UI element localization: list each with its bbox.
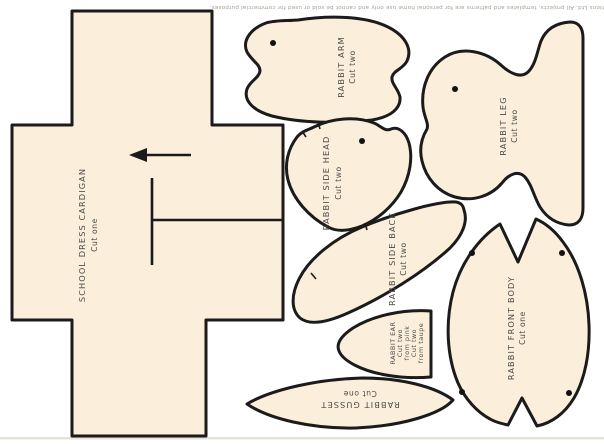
front-body-joint-dot (459, 389, 465, 395)
rabbit-gusset-cut-label: Cut one (343, 389, 377, 398)
rabbit-ear-cut-line-4: from taupe (417, 323, 425, 363)
rabbit-side-back-cut-label: Cut two (399, 242, 408, 276)
rabbit-side-head-eye-dot (359, 138, 365, 144)
rabbit-leg-joint-dot (452, 86, 458, 92)
rabbit-gusset-label: RABBIT GUSSET (320, 400, 399, 410)
rabbit-leg-cut-label: Cut two (510, 109, 519, 143)
front-body-joint-dot (566, 390, 572, 396)
rabbit-front-body-label: RABBIT FRONT BODY (506, 276, 516, 380)
rabbit-leg-label: RABBIT LEG (498, 96, 508, 155)
rabbit-arm-joint-dot (270, 40, 276, 46)
rabbit-side-head-label: RABBIT SIDE HEAD (321, 136, 331, 231)
rabbit-side-back-label: RABBIT SIDE BACK (387, 212, 397, 306)
piece-rabbit-leg: RABBIT LEG Cut two (421, 22, 583, 225)
piece-rabbit-ear: RABBIT EAR Cut two from pink Cut two fro… (338, 311, 431, 378)
front-body-joint-dot (559, 250, 565, 256)
cardigan-label: SCHOOL DRESS CARDIGAN (77, 168, 87, 302)
rabbit-arm-cut-label: Cut two (348, 50, 357, 84)
cardigan-shape (12, 11, 283, 436)
copyright-text: © Aceville Publications Ltd. All project… (210, 4, 604, 11)
piece-rabbit-front-body: RABBIT FRONT BODY Cut one (448, 219, 589, 426)
rabbit-side-head-cut-label: Cut two (334, 166, 343, 200)
piece-rabbit-arm: RABBIT ARM Cut two (246, 17, 409, 122)
piece-school-dress-cardigan: SCHOOL DRESS CARDIGAN Cut one (12, 11, 283, 436)
rabbit-arm-label: RABBIT ARM (336, 36, 346, 98)
front-body-joint-dot (469, 250, 475, 256)
rabbit-front-body-cut-label: Cut one (518, 311, 527, 345)
pattern-sheet: SCHOOL DRESS CARDIGAN Cut one RABBIT ARM… (0, 0, 604, 444)
rabbit-arm-shape (246, 17, 409, 122)
pattern-sheet-canvas: SCHOOL DRESS CARDIGAN Cut one RABBIT ARM… (0, 0, 604, 444)
cardigan-cut-label: Cut one (90, 218, 99, 252)
piece-rabbit-gusset: RABBIT GUSSET Cut one (247, 378, 453, 428)
